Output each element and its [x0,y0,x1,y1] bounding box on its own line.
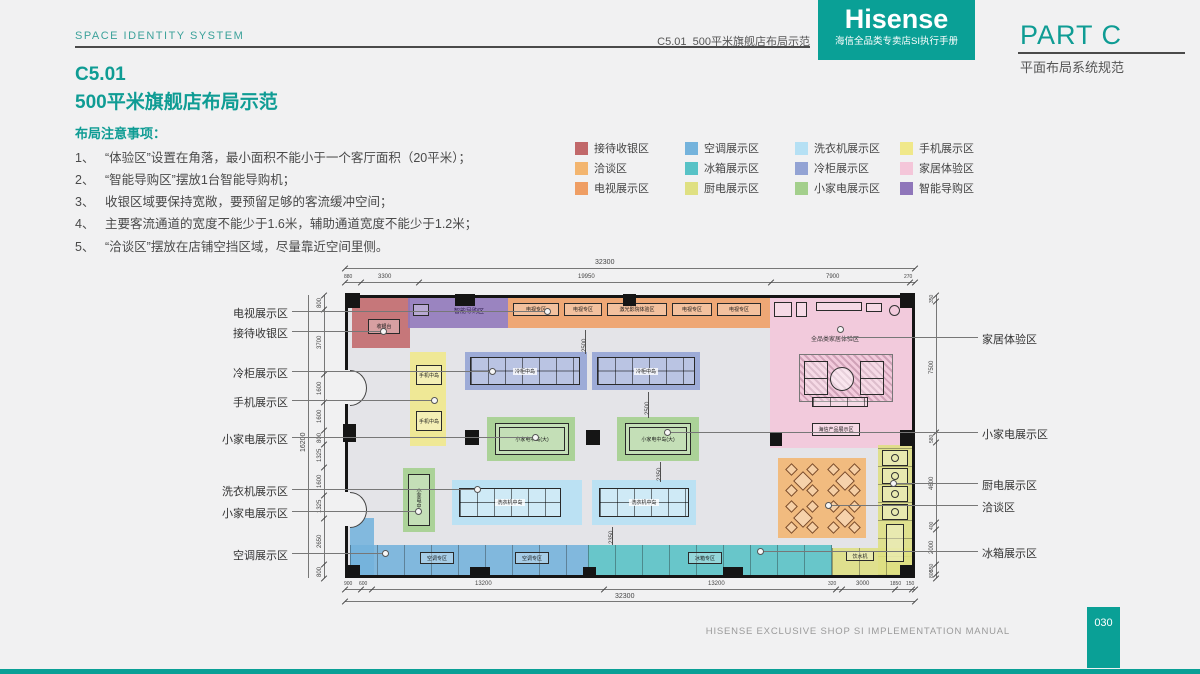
leader-dot [489,368,496,375]
dim-tick [912,265,918,271]
legend-label: 电视展示区 [594,180,649,196]
burner-icon [891,454,899,462]
leader-dot [757,548,764,555]
plan-label-fridge: 冰箱展示区 [982,545,1037,561]
leader-dot [382,550,389,557]
page-number-tab: 030 [1087,607,1120,668]
legend-label: 智能导购区 [919,180,974,196]
kitchen-fixture [882,486,908,502]
plan-label-ac: 空调展示区 [188,547,288,563]
leader-dot [544,308,551,315]
legend-swatch [685,162,698,175]
plan-label-meeting: 洽谈区 [982,499,1015,515]
chair [806,521,819,534]
dim-value: 13200 [475,581,492,587]
display-shelf [866,303,882,312]
part-title: PART C [1020,20,1122,51]
dim-value: 900 [344,581,352,587]
tv-cabinet [812,397,868,407]
tv-zone-fixture: 电视专区 [564,303,602,316]
legend-label: 接待收银区 [594,140,649,156]
legend-label: 洗衣机展示区 [814,140,880,156]
dim-value: 3700 [317,336,323,349]
dim-value: 13200 [708,581,725,587]
leader-dot [664,429,671,436]
manual-page: SPACE IDENTITY SYSTEM C5.01 500平米旗舰店布局示范… [0,0,1200,674]
ac-zone-fixture: 空调专区 [515,552,549,564]
legend-item: 小家电展示区 [795,180,880,196]
home-experience-label: 全品类家居体验区 [780,334,890,343]
leader-dot [825,502,832,509]
legend-swatch [900,162,913,175]
dim-value: 800 [929,570,935,578]
sofa [860,361,884,395]
note-number: 2、 [75,169,105,188]
legend-label: 冷柜展示区 [814,160,869,176]
leader-dot [415,508,422,515]
legend-swatch [685,142,698,155]
phone-island: 手机中岛 [416,365,442,385]
meeting-table-set [787,502,817,532]
legend-item: 手机展示区 [900,140,974,156]
chair [806,500,819,513]
meeting-table-set [829,465,859,495]
leader-line [292,371,492,372]
legend-item: 厨电展示区 [685,180,759,196]
plan-label-freezer: 冷柜展示区 [188,365,288,381]
dim-value: 3300 [378,274,391,280]
page-title: 500平米旗舰店布局示范 [75,87,278,114]
island-label: 小家电中岛(大) [641,436,674,443]
leader-dot [474,486,481,493]
leader-line [843,337,978,338]
freezer-island-label: 冷柜中岛 [513,368,537,375]
legend-swatch [575,182,588,195]
dim-line-bottom-total [345,601,915,602]
plan-label-small-appliance: 小家电展示区 [188,505,288,521]
sofa [804,361,828,395]
dim-total-width: 32300 [595,259,614,266]
leader-line [667,432,978,433]
chair [806,484,819,497]
leader-line [828,505,978,506]
plan-label-small-appliance: 小家电展示区 [188,431,288,447]
leader-line [292,511,418,512]
dim-line-top-segments [345,282,915,283]
dim-total-width: 32300 [615,593,634,600]
leader-line [292,311,547,312]
burner-icon [891,490,899,498]
note-text: “洽谈区”摆放在店铺空挡区域，尽量靠近空间里侧。 [105,240,388,254]
legend-swatch [795,142,808,155]
legend-label: 手机展示区 [919,140,974,156]
column [345,293,360,308]
dim-line-top-total [345,268,915,269]
dim-value: 1600 [317,475,323,488]
chair [848,484,861,497]
dim-left-total: 16200 [300,433,307,452]
legend-swatch [795,182,808,195]
column [455,294,475,306]
plan-label-home-exp: 家居体验区 [982,331,1037,347]
island-inner: 小家电中岛(大) [629,427,687,451]
leader-line [292,553,385,554]
display-cabinet [796,302,807,317]
column [770,432,782,446]
phone-island: 手机中岛 [416,411,442,431]
sofa-cushion-line [805,378,827,379]
dim-value: 400 [929,522,935,530]
dim-value: 320 [828,581,836,587]
bottom-accent-bar [0,669,1200,674]
column [343,424,356,442]
dim-line-bottom-segments [345,589,915,590]
notes-heading: 布局注意事项： [75,123,166,142]
washer-island-label: 洗衣机中岛 [495,499,524,506]
washer-island-label: 洗衣机中岛 [629,499,658,506]
dim-value: 270 [904,274,912,280]
leader-dot [837,326,844,333]
freezer-island-label: 冷柜中岛 [634,368,658,375]
water-dispenser: 饮水机 [846,551,874,561]
chair [785,463,798,476]
column [345,565,360,578]
dim-value: 7900 [826,274,839,280]
note-number: 3、 [75,191,105,210]
kitchen-fixture [882,450,908,466]
column [900,565,915,578]
chair [827,521,840,534]
plan-label-phone: 手机展示区 [188,394,288,410]
column [723,567,743,578]
leader-dot [890,480,897,487]
system-label: SPACE IDENTITY SYSTEM [75,30,244,42]
note-text: “体验区”设置在角落，最小面积不能小于一个客厅面积（20平米）； [105,151,471,165]
tv-zone-fixture: 电视专区 [717,303,761,316]
legend-swatch [795,162,808,175]
washer-island: 洗衣机中岛 [459,488,561,517]
sofa-cushion-line [861,378,883,379]
part-rule [1018,52,1185,54]
clock-icon [889,305,900,316]
smart-guide-kiosk [413,304,429,316]
dim-tick [912,598,918,604]
inner-dim-value: 2350 [609,531,615,544]
chair [827,463,840,476]
meeting-table-set [787,465,817,495]
legend-swatch [575,162,588,175]
inner-dim-value: 2500 [645,402,651,415]
kitchen-fixture [882,504,908,520]
leader-line [760,551,978,552]
note-number: 4、 [75,213,105,232]
product-display-stand: 海信产品展示区 [812,423,860,436]
dim-value: 150 [906,581,914,587]
footer-manual-title: HISENSE EXCLUSIVE SHOP SI IMPLEMENTATION… [560,626,1010,637]
chair [848,521,861,534]
note-number: 5、 [75,236,105,255]
note-item: 3、收银区域要保持宽敞，要预留足够的客流缓冲空间； [75,191,393,210]
legend-item: 洗衣机展示区 [795,140,880,156]
legend-item: 冷柜展示区 [795,160,869,176]
leader-line [292,400,434,401]
legend-label: 小家电展示区 [814,180,880,196]
leader-dot [532,434,539,441]
dim-value: 19950 [578,274,595,280]
plan-label-kitchen: 厨电展示区 [982,477,1037,493]
note-item: 4、主要客流通道的宽度不能少于1.6米，辅助通道宽度不能少于1.2米； [75,213,477,232]
chair [806,463,819,476]
note-item: 5、“洽谈区”摆放在店铺空挡区域，尽量靠近空间里侧。 [75,236,388,255]
small-appliance-island: 小家电中岛 [408,474,430,526]
kitchen-counter [886,524,904,562]
tv-zone-fixture: 电视专区 [672,303,712,316]
legend-item: 接待收银区 [575,140,649,156]
column [586,430,600,445]
legend-item: 家居体验区 [900,160,974,176]
leader-line [292,331,383,332]
washer-island: 洗衣机中岛 [599,488,689,517]
note-text: 主要客流通道的宽度不能少于1.6米，辅助通道宽度不能少于1.2米； [105,217,477,231]
dim-value: 880 [344,274,352,280]
meeting-table-set [829,502,859,532]
dim-value: 580 [929,435,935,443]
note-text: “智能导购区”摆放1台智能导购机； [105,173,295,187]
chair [785,484,798,497]
dim-value: 1850 [890,581,901,587]
small-appliance-island-large: 小家电中岛(大) [625,423,691,455]
brand-box: Hisense 海信全品类专卖店SI执行手册 [818,0,975,60]
inner-dim-value: 2350 [657,468,663,481]
leader-line [292,437,535,438]
legend-item: 电视展示区 [575,180,649,196]
breadcrumb: C5.01 500平米旗舰店布局示范 [480,33,810,49]
dim-value: 800 [317,298,323,308]
tv-zone-fixture: 电视专区 [513,303,559,316]
legend-swatch [900,142,913,155]
section-code: C5.01 [75,64,126,86]
legend-item: 冰箱展示区 [685,160,759,176]
dim-value: 1600 [317,410,323,423]
chair [848,463,861,476]
burner-icon [891,472,899,480]
column [583,567,596,578]
note-text: 收银区域要保持宽敞，要预留足够的客流缓冲空间； [105,195,393,209]
chair [848,500,861,513]
legend-label: 家居体验区 [919,160,974,176]
legend-item: 智能导购区 [900,180,974,196]
display-cabinet [774,302,792,317]
legend-item: 空调展示区 [685,140,759,156]
leader-dot [431,397,438,404]
ac-zone-fixture: 空调专区 [420,552,454,564]
plan-label-small-appliance: 小家电展示区 [982,426,1048,442]
column [900,293,915,308]
leader-line [893,483,978,484]
hisense-logo: Hisense [818,6,975,32]
chair [827,484,840,497]
legend-swatch [685,182,698,195]
freezer-island: 冷柜中岛 [597,357,695,385]
plan-label-washer: 洗衣机展示区 [188,483,288,499]
note-item: 2、“智能导购区”摆放1台智能导购机； [75,169,295,188]
plan-label-reception: 接待收银区 [188,325,288,341]
laser-theater-fixture: 激光影院体验区 [607,303,667,316]
dim-value: 1325 [317,449,323,462]
plan-label-tv: 电视展示区 [188,305,288,321]
legend-label: 空调展示区 [704,140,759,156]
note-number: 1、 [75,147,105,166]
fridge-zone-fixture: 冰箱专区 [688,552,722,564]
leader-line [292,489,477,490]
inner-dim-value: 2500 [582,339,588,352]
dim-value: 1600 [317,382,323,395]
experience-bench [816,302,862,311]
legend-swatch [575,142,588,155]
dim-value: 600 [359,581,367,587]
chair [785,500,798,513]
leader-dot [380,328,387,335]
legend-label: 厨电展示区 [704,180,759,196]
dim-value: 7500 [929,361,935,374]
dim-value: 350 [929,295,935,303]
chair [785,521,798,534]
round-table [830,367,854,391]
burner-icon [891,508,899,516]
column [470,567,490,578]
note-item: 1、“体验区”设置在角落，最小面积不能小于一个客厅面积（20平米）； [75,147,471,166]
dim-value: 800 [317,567,323,577]
dim-value: 3000 [856,581,869,587]
column [623,294,636,306]
dim-value: 2650 [317,535,323,548]
part-subtitle: 平面布局系统规范 [1020,57,1124,76]
legend-swatch [900,182,913,195]
legend-label: 冰箱展示区 [704,160,759,176]
legend-label: 洽谈区 [594,160,627,176]
brand-tagline: 海信全品类专卖店SI执行手册 [818,33,975,47]
legend-item: 洽谈区 [575,160,627,176]
